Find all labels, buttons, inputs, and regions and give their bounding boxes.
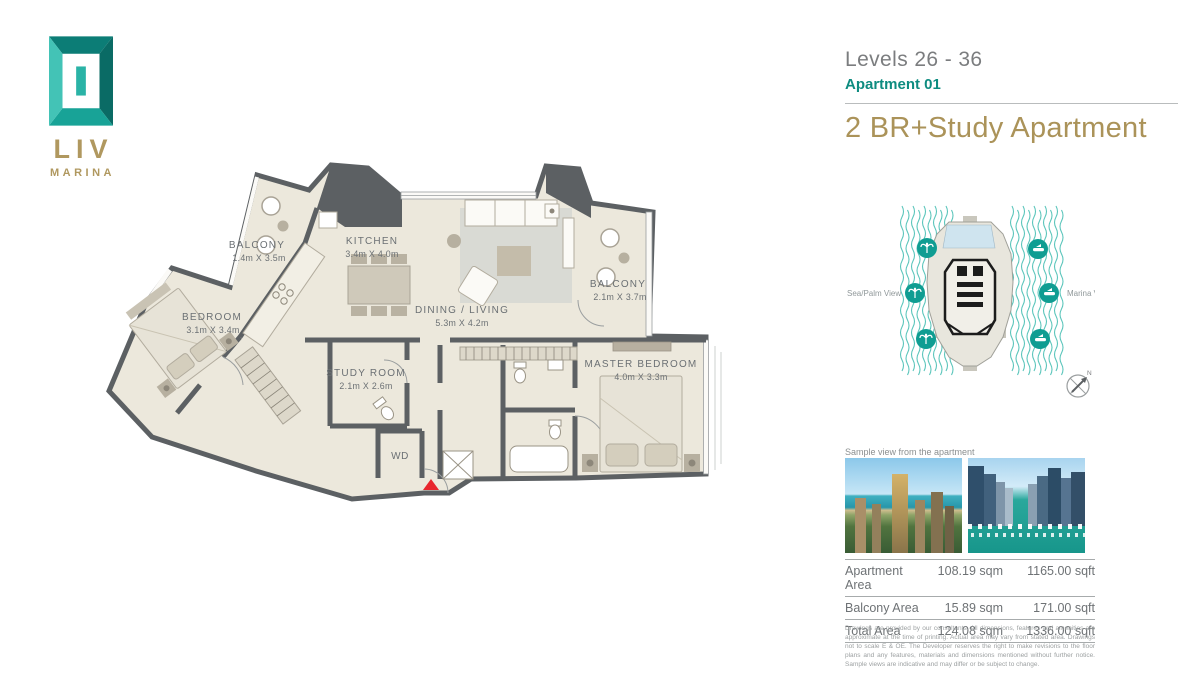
floor-plan: BALCONY 1.4m X 3.5m KITCHEN 3.4m X 4.0m … [85,148,785,513]
room-label-balcony-right: BALCONY [590,279,646,290]
room-dims-study: 2.1m X 2.6m [339,381,392,391]
sample-view-photos [845,458,1085,553]
dining-table [348,254,410,316]
area-sqm: 108.19 sqm [923,564,1003,592]
room-dims-bedroom: 3.1m X 3.4m [186,325,239,335]
room-dims-kitchen: 3.4m X 4.0m [345,249,398,259]
area-label: Balcony Area [845,601,923,615]
disclaimer-text: Drawings are provided by our consultants… [845,624,1095,669]
room-label-master: MASTER BEDROOM [585,359,698,370]
sample-view-caption: Sample view from the apartment [845,447,975,457]
area-label: Apartment Area [845,564,923,592]
levels-label: Levels 26 - 36 [845,48,1178,72]
room-label-balcony-left: BALCONY [229,240,285,251]
highlighted-apartment-unit [943,225,995,248]
building-footprint [927,216,1013,371]
photo-marina-view [968,458,1085,553]
apartment-number: Apartment 01 [845,76,1178,93]
header-divider [845,103,1178,104]
room-label-bedroom: BEDROOM [182,312,242,323]
room-dims-balcony-left: 1.4m X 3.5m [232,253,285,263]
header-block: Levels 26 - 36 Apartment 01 2 BR+Study A… [845,48,1178,145]
room-dims-dining-living: 5.3m X 4.2m [435,318,488,328]
room-label-study: STUDY ROOM [326,368,406,379]
living-room-furniture [447,200,574,307]
page-title: 2 BR+Study Apartment [845,112,1178,145]
area-sqft: 1165.00 sqft [1003,564,1095,592]
area-sqm: 15.89 sqm [923,601,1003,615]
marina-view-label: Marina View [1067,289,1095,298]
room-label-kitchen: KITCHEN [346,236,398,247]
sea-palm-view-label: Sea/Palm View [847,289,901,298]
room-dims-master: 4.0m X 3.3m [614,372,667,382]
brochure-page: LIV MARINA Levels 26 - 36 Apartment 01 2… [0,0,1200,675]
room-dims-balcony-right: 2.1m X 3.7m [593,292,646,302]
area-sqft: 171.00 sqft [1003,601,1095,615]
table-row-apartment-area: Apartment Area 108.19 sqm 1165.00 sqft [845,559,1095,596]
compass-north-label: N [1087,370,1092,377]
photo-sea-palm-view [845,458,962,553]
table-row-balcony-area: Balcony Area 15.89 sqm 171.00 sqft [845,596,1095,619]
room-label-dining-living: DINING / LIVING [415,305,509,316]
liv-marina-logo-icon [49,36,113,126]
building-orientation-diagram: Sea/Palm View Marina View N [845,192,1095,404]
compass-icon: N [1067,370,1092,397]
room-label-wd: WD [391,451,409,462]
